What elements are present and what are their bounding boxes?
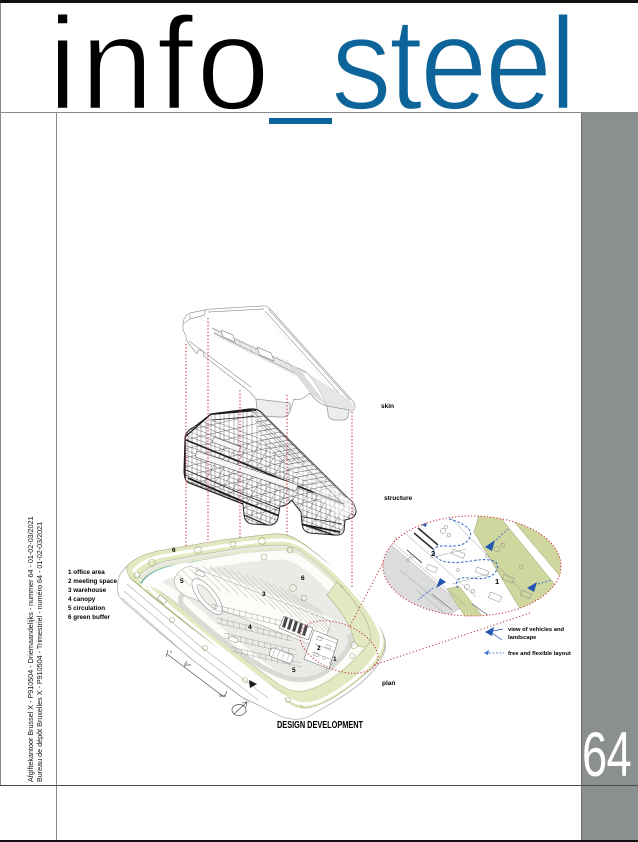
svg-text:free and flexible layout: free and flexible layout [508,651,571,657]
svg-text:view of vehicles and: view of vehicles and [508,627,565,633]
svg-text:skin: skin [381,403,394,410]
svg-text:1 office area: 1 office area [68,569,105,576]
svg-text:DESIGN DEVELOPMENT: DESIGN DEVELOPMENT [277,720,363,731]
svg-text:6: 6 [172,547,176,554]
svg-text:5: 5 [180,578,184,585]
svg-text:2: 2 [431,549,435,558]
svg-text:10m: 10m [184,663,191,667]
svg-text:1: 1 [333,656,337,663]
svg-text:structure: structure [384,495,413,502]
svg-text:4 canopy: 4 canopy [68,596,96,603]
svg-text:2: 2 [317,645,321,652]
svg-text:3: 3 [262,591,266,598]
svg-text:0: 0 [170,650,172,654]
svg-text:50m: 50m [219,694,226,698]
svg-text:6: 6 [301,575,305,582]
svg-text:plan: plan [382,680,395,687]
svg-text:landscape: landscape [508,635,537,641]
svg-text:1: 1 [495,577,499,586]
svg-text:6 green buffer: 6 green buffer [68,614,111,621]
svg-text:5 circulation: 5 circulation [68,605,105,612]
svg-text:3 warehouse: 3 warehouse [68,587,107,594]
svg-text:2 meeting space: 2 meeting space [68,578,117,585]
svg-text:4: 4 [248,624,252,631]
svg-text:5: 5 [292,667,296,674]
